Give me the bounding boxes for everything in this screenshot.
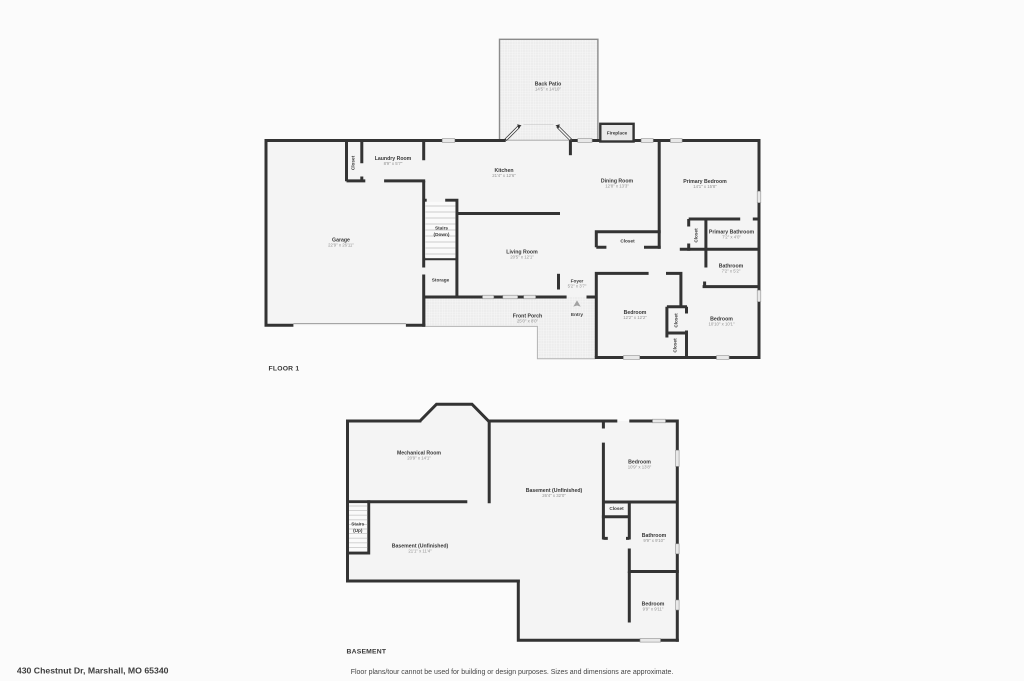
svg-text:Stairs: Stairs xyxy=(435,226,448,231)
svg-text:20'9" x 14'1": 20'9" x 14'1" xyxy=(407,456,431,461)
svg-text:Closet: Closet xyxy=(673,313,678,328)
svg-text:9'9" x 9'10": 9'9" x 9'10" xyxy=(643,538,665,543)
svg-text:Closet: Closet xyxy=(673,338,678,353)
svg-text:Closet: Closet xyxy=(693,228,698,243)
svg-text:FLOOR 1: FLOOR 1 xyxy=(269,366,300,373)
svg-text:22'9" x 26'11": 22'9" x 26'11" xyxy=(328,243,354,248)
svg-text:Closet: Closet xyxy=(620,239,635,244)
svg-text:(Down): (Down) xyxy=(434,232,450,237)
svg-text:Fireplace: Fireplace xyxy=(607,131,628,136)
svg-text:21'4" x 12'6": 21'4" x 12'6" xyxy=(492,173,516,178)
svg-text:12'8" x 13'3": 12'8" x 13'3" xyxy=(605,184,629,189)
svg-text:7'2" x 4'0": 7'2" x 4'0" xyxy=(722,235,741,240)
svg-text:21'1" x 11'4": 21'1" x 11'4" xyxy=(408,549,432,554)
svg-text:20'5" x 12'1": 20'5" x 12'1" xyxy=(510,255,534,260)
svg-text:Closet: Closet xyxy=(609,506,624,511)
svg-text:(Up): (Up) xyxy=(353,528,363,533)
svg-text:BASEMENT: BASEMENT xyxy=(347,649,387,656)
svg-text:8'9" x 5'7": 8'9" x 5'7" xyxy=(384,161,403,166)
svg-text:25'0" x 8'0": 25'0" x 8'0" xyxy=(517,319,539,324)
svg-text:Storage: Storage xyxy=(432,278,450,283)
svg-text:12'2" x 12'2": 12'2" x 12'2" xyxy=(623,315,647,320)
svg-text:Floor plans/tour cannot be use: Floor plans/tour cannot be used for buil… xyxy=(351,669,674,676)
svg-text:Stairs: Stairs xyxy=(351,522,364,527)
svg-text:Entry: Entry xyxy=(571,312,583,317)
svg-text:14'1" x 15'8": 14'1" x 15'8" xyxy=(693,184,717,189)
svg-text:7'2" x 5'2": 7'2" x 5'2" xyxy=(722,269,741,274)
svg-text:430 Chestnut Dr, Marshall, MO: 430 Chestnut Dr, Marshall, MO 65340 xyxy=(17,666,169,676)
svg-text:10'10" x 10'1": 10'10" x 10'1" xyxy=(709,322,735,327)
svg-text:9'9" x 9'11": 9'9" x 9'11" xyxy=(643,607,664,612)
svg-text:5'2" x 3'7": 5'2" x 3'7" xyxy=(568,284,587,289)
svg-text:Closet: Closet xyxy=(351,155,356,170)
svg-text:14'5" x 14'10": 14'5" x 14'10" xyxy=(535,87,561,92)
svg-text:26'4" x 32'0": 26'4" x 32'0" xyxy=(542,493,566,498)
svg-text:10'9" x 13'8": 10'9" x 13'8" xyxy=(628,465,652,470)
